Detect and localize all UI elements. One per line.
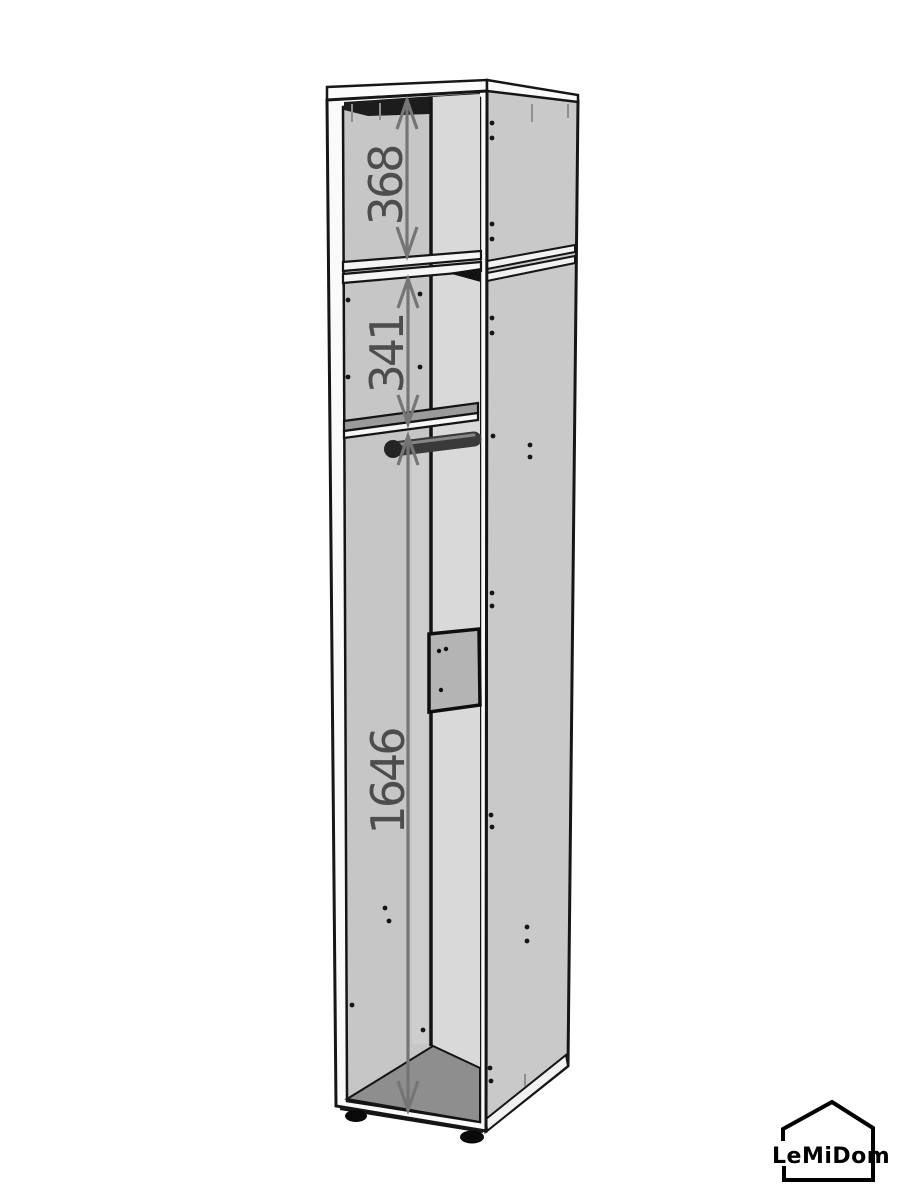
- screw-hole-dot: [489, 813, 494, 818]
- screw-hole-dot: [525, 925, 530, 930]
- interior-right-panel: [431, 94, 480, 1068]
- screw-hole-dot: [421, 1028, 426, 1033]
- cabinet-side-panel: [486, 90, 578, 1131]
- dimension-label-1646: 1646: [361, 729, 415, 835]
- screw-hole-dot: [490, 331, 495, 336]
- screw-hole-dot: [528, 443, 533, 448]
- screw-hole-dot: [491, 434, 496, 439]
- screw-hole-dot: [418, 365, 423, 370]
- screw-hole-dot: [439, 688, 443, 692]
- screw-hole-dot: [525, 939, 530, 944]
- screw-hole-dot: [490, 825, 495, 830]
- mount-panel-face: [429, 629, 480, 712]
- screw-hole-dot: [437, 649, 441, 653]
- foot-left: [345, 1110, 367, 1122]
- screw-hole-dot: [490, 237, 495, 242]
- screw-hole-dot: [350, 1003, 355, 1008]
- screw-hole-dot: [490, 222, 495, 227]
- screw-hole-dot: [444, 647, 448, 651]
- screw-hole-dot: [490, 136, 495, 141]
- brand-logo-text: LeMiDom: [772, 1144, 890, 1169]
- dimension-label-341: 341: [360, 315, 414, 394]
- screw-hole-dot: [490, 591, 495, 596]
- screw-hole-dot: [528, 455, 533, 460]
- screw-hole-dot: [490, 316, 495, 321]
- screw-hole-dot: [490, 604, 495, 609]
- foot-right: [460, 1131, 484, 1144]
- screw-hole-dot: [490, 121, 495, 126]
- brand-logo: LeMiDom: [772, 1102, 890, 1180]
- rod-end-cap: [384, 440, 402, 458]
- screw-hole-dot: [383, 906, 388, 911]
- screw-hole-dot: [346, 298, 351, 303]
- screw-hole-dot: [346, 375, 351, 380]
- screw-hole-dot: [418, 292, 423, 297]
- screw-hole-dot: [387, 919, 392, 924]
- screw-hole-dot: [489, 1079, 494, 1084]
- back-mount-panel: [429, 629, 480, 712]
- screw-hole-dot: [488, 1066, 493, 1071]
- cabinet-dimension-diagram: 368 341 1646 LeMiDom: [0, 0, 900, 1200]
- dimension-label-368: 368: [359, 146, 413, 226]
